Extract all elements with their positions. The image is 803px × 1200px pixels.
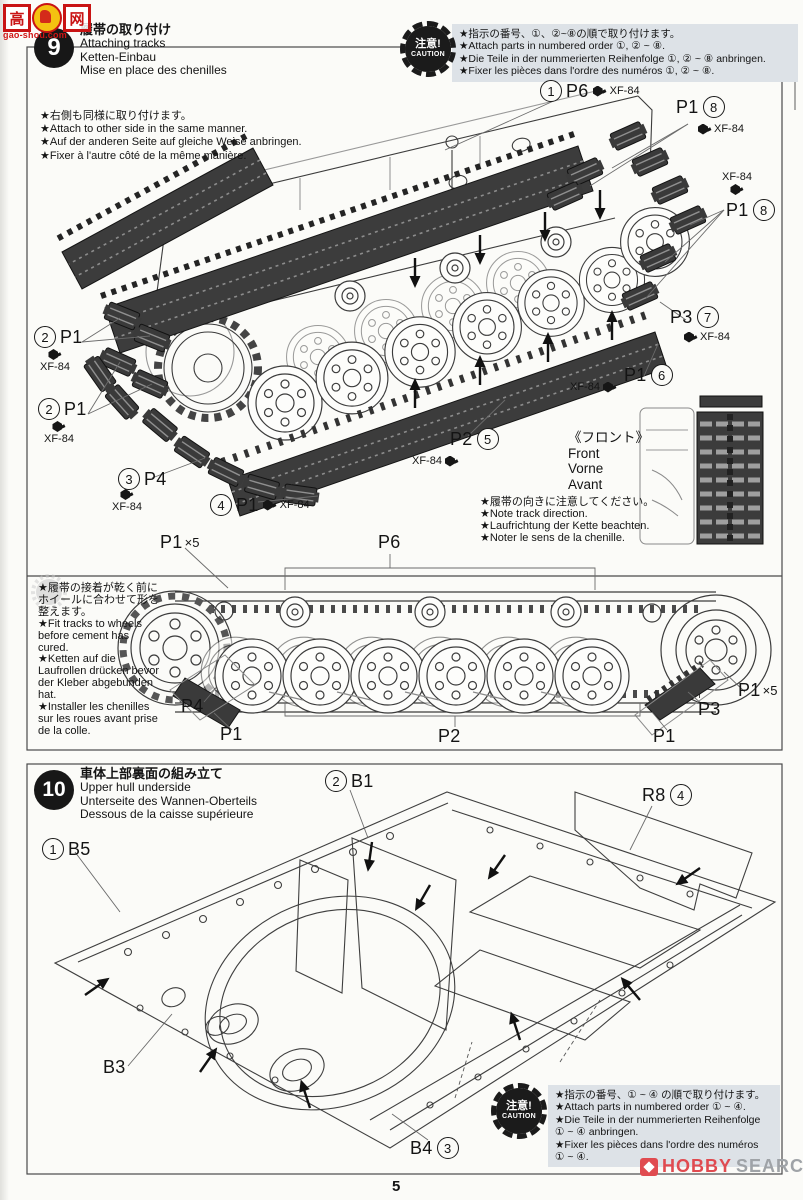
instruction-sheet-page: 9 履帯の取り付け Attaching tracks Ketten-Einbau…	[0, 0, 803, 1200]
label-step4-p1: 4 P1 XF-84	[210, 494, 310, 516]
note-line: ★Attach to other side in the same manner…	[40, 123, 302, 136]
gao-shou-logo-char: 网	[63, 4, 91, 32]
part-code: P2	[438, 726, 461, 747]
paint-chip-icon	[48, 349, 61, 360]
label-step1-p6: 1 P6 XF-84	[540, 80, 640, 102]
label-step2-p1-b: 2 P1	[38, 398, 87, 420]
caution-bottom-line: ★Fixer les pièces dans l'ordre des numér…	[555, 1139, 773, 1151]
step-number-circle: 1	[42, 838, 64, 860]
paint-chip-icon	[698, 124, 711, 135]
part-code: P1	[160, 532, 183, 553]
part-code: P4	[181, 696, 204, 717]
step-number-circle: 3	[437, 1137, 459, 1159]
part-code: P1	[236, 495, 259, 516]
hobby-search-watermark: HOBBY SEARCH	[640, 1156, 803, 1177]
note-attach-other-side: ★右側も同様に取り付けます。 ★Attach to other side in …	[40, 110, 302, 163]
paint-chip-icon	[263, 500, 276, 511]
part-code: P1	[676, 97, 699, 118]
step-number-circle: 7	[697, 306, 719, 328]
label-step3-p4: 3 P4	[118, 468, 167, 490]
label-p1x5-top: P1 ×5	[160, 532, 199, 553]
part-code: P4	[144, 469, 167, 490]
thumbs-up-icon	[32, 3, 62, 33]
caution-top-line: ★Fixer les pièces dans l'ordre des numér…	[459, 65, 791, 77]
paint-chip-icon	[684, 332, 697, 343]
part-code: B1	[351, 771, 374, 792]
part-code: P1	[738, 680, 761, 701]
note-line: ★Noter le sens de la chenille.	[480, 533, 654, 545]
caution-seal-bottom: 注意! CAUTION	[496, 1088, 542, 1134]
caution-bottom-line: ★Attach parts in numbered order ① ~ ④.	[555, 1101, 773, 1113]
caution-seal-bottom-ja: 注意!	[506, 1101, 532, 1112]
label-side-p1-right: P1	[653, 726, 676, 747]
step-number-circle: 2	[34, 326, 56, 348]
paint-code: XF-84	[112, 501, 142, 513]
front-direction-label: 《フロント》 Front Vorne Avant	[568, 430, 649, 492]
part-code: B3	[103, 1057, 126, 1078]
part-code: P3	[670, 307, 693, 328]
label-step8-p1-a: P1 8	[676, 96, 725, 118]
paint-callout: XF-84	[722, 171, 752, 195]
part-code: P1	[726, 200, 749, 221]
paint-code: XF-84	[610, 85, 640, 97]
label-step7-p3: P3 7	[670, 306, 719, 328]
part-code: B5	[68, 839, 91, 860]
note-line: ★右側も同様に取り付けます。	[40, 110, 302, 123]
caution-seal-bottom-en: CAUTION	[502, 1112, 536, 1121]
step-number-circle: 8	[753, 199, 775, 221]
paint-code: XF-84	[44, 433, 74, 445]
gao-shou-logo-char: 高	[3, 4, 31, 32]
label-side-p1x5-right: P1 ×5	[738, 680, 777, 701]
part-code: P6	[566, 81, 589, 102]
step-10-badge: 10	[34, 770, 74, 810]
step-number-circle: 1	[540, 80, 562, 102]
paint-chip-icon	[603, 382, 616, 393]
caution-seal-top-en: CAUTION	[411, 50, 445, 59]
label-side-p2: P2	[438, 726, 461, 747]
step-10-title-en: Upper hull underside	[80, 781, 257, 795]
part-code: P3	[698, 699, 721, 720]
front-ja: 《フロント》	[568, 430, 649, 446]
label-step8-p1-b: P1 8	[726, 199, 775, 221]
part-code: P2	[450, 429, 473, 450]
note-line: ★Laufrichtung der Kette beachten.	[480, 521, 654, 533]
paint-chip-icon	[593, 86, 606, 97]
label-b3: B3	[103, 1057, 126, 1078]
front-en: Front	[568, 446, 649, 462]
label-step1-b5: 1 B5	[42, 838, 91, 860]
part-code: P1	[624, 365, 647, 386]
label-side-p3: P3	[698, 699, 721, 720]
part-multiplier: ×5	[185, 535, 200, 550]
step-number-circle: 5	[477, 428, 499, 450]
step-10-title-fr: Dessous de la caisse supérieure	[80, 808, 257, 822]
front-de: Vorne	[568, 461, 649, 477]
note-line: ★Fit tracks to wheels	[38, 619, 159, 631]
step-number-circle: 3	[118, 468, 140, 490]
note-line: 整えます。	[38, 607, 159, 619]
front-fr: Avant	[568, 477, 649, 493]
paint-callout: XF-84	[698, 123, 744, 135]
note-line: der Kleber abgebunden	[38, 678, 159, 690]
step-10-title: 車体上部裏面の組み立て Upper hull underside Unterse…	[80, 766, 257, 822]
part-code: P1	[64, 399, 87, 420]
step-9-title-de: Ketten-Einbau	[80, 51, 227, 65]
part-multiplier: ×5	[763, 683, 778, 698]
caution-top-line: ★指示の番号、①、②~⑧の順で取り付けます。	[459, 28, 791, 40]
note-line: ★Auf der anderen Seite auf gleiche Weise…	[40, 136, 302, 149]
paint-callout: XF-84	[40, 349, 70, 373]
part-code: P1	[60, 327, 83, 348]
caution-top-line: ★Die Teile in der nummerierten Reihenfol…	[459, 53, 791, 65]
paint-code: XF-84	[722, 171, 752, 183]
paint-code: XF-84	[40, 361, 70, 373]
paint-callout: XF-84	[570, 381, 616, 393]
caution-box-top: ★指示の番号、①、②~⑧の順で取り付けます。 ★Attach parts in …	[452, 24, 798, 82]
caution-seal-top: 注意! CAUTION	[405, 26, 451, 72]
hobby-search-name-red: HOBBY	[662, 1156, 732, 1177]
label-step6-p1: P1 6	[624, 364, 673, 386]
caution-bottom-line: ① ~ ④ anbringen.	[555, 1126, 773, 1138]
note-fit-tracks: ★履帯の接着が乾く前に ホイールに合わせて形を 整えます。 ★Fit track…	[38, 583, 159, 738]
gao-shou-url: gao-shou.com	[3, 30, 67, 40]
label-side-p1-left: P1	[220, 724, 243, 745]
paint-callout: XF-84	[112, 489, 142, 513]
step-number-circle: 4	[670, 784, 692, 806]
note-track-direction: ★履帯の向きに注意してください。 ★Note track direction. …	[480, 497, 654, 545]
step-number-circle: 4	[210, 494, 232, 516]
paint-code: XF-84	[714, 123, 744, 135]
note-line: de la colle.	[38, 726, 159, 738]
step-number-circle: 6	[651, 364, 673, 386]
part-code: R8	[642, 785, 666, 806]
step-9-title-fr: Mise en place des chenilles	[80, 64, 227, 78]
step-10-title-ja: 車体上部裏面の組み立て	[80, 766, 257, 781]
caution-top-line: ★Attach parts in numbered order ①, ② ~ ⑧…	[459, 40, 791, 52]
step-10-title-de: Unterseite des Wannen-Oberteils	[80, 795, 257, 809]
step-number-circle: 8	[703, 96, 725, 118]
caution-seal-top-ja: 注意!	[415, 39, 441, 50]
paint-code: XF-84	[570, 381, 600, 393]
label-step2-p1-a: 2 P1	[34, 326, 83, 348]
label-side-p4: P4	[181, 696, 204, 717]
hobby-search-icon	[640, 1158, 658, 1176]
paint-code: XF-84	[412, 455, 442, 467]
paint-chip-icon	[120, 489, 133, 500]
label-step2-b1: 2 B1	[325, 770, 374, 792]
step-number-circle: 2	[325, 770, 347, 792]
step-9-title-en: Attaching tracks	[80, 37, 227, 51]
part-code: P6	[378, 532, 401, 553]
part-code: P1	[653, 726, 676, 747]
step-number-circle: 2	[38, 398, 60, 420]
label-step5-p2: P2 5	[450, 428, 499, 450]
caution-bottom-line: ★Die Teile in der nummerierten Reihenfol…	[555, 1114, 773, 1126]
step-9-title: 履帯の取り付け Attaching tracks Ketten-Einbau M…	[80, 22, 227, 78]
caution-bottom-line: ★指示の番号、① ~ ④ の順で取り付けます。	[555, 1089, 773, 1101]
hobby-search-name-gray: SEARCH	[736, 1156, 803, 1177]
paint-callout: XF-84	[44, 421, 74, 445]
part-code: P1	[220, 724, 243, 745]
paint-chip-icon	[445, 456, 458, 467]
paint-chip-icon	[730, 184, 743, 195]
label-step3-b4: B4 3	[410, 1137, 459, 1159]
note-line: before cement has	[38, 631, 159, 643]
gao-shou-watermark: 高 网 gao-shou.com	[3, 4, 91, 33]
step-9-title-ja: 履帯の取り付け	[80, 22, 227, 37]
paint-code: XF-84	[700, 331, 730, 343]
page-number: 5	[392, 1178, 400, 1195]
paint-callout: XF-84	[684, 331, 730, 343]
paint-code: XF-84	[280, 499, 310, 511]
part-code: B4	[410, 1138, 433, 1159]
label-step4-r8: R8 4	[642, 784, 692, 806]
paint-chip-icon	[52, 421, 65, 432]
label-p6-top: P6	[378, 532, 401, 553]
note-line: ★Fixer à l'autre côté de la même manière…	[40, 150, 302, 163]
paint-callout: XF-84	[412, 455, 458, 467]
